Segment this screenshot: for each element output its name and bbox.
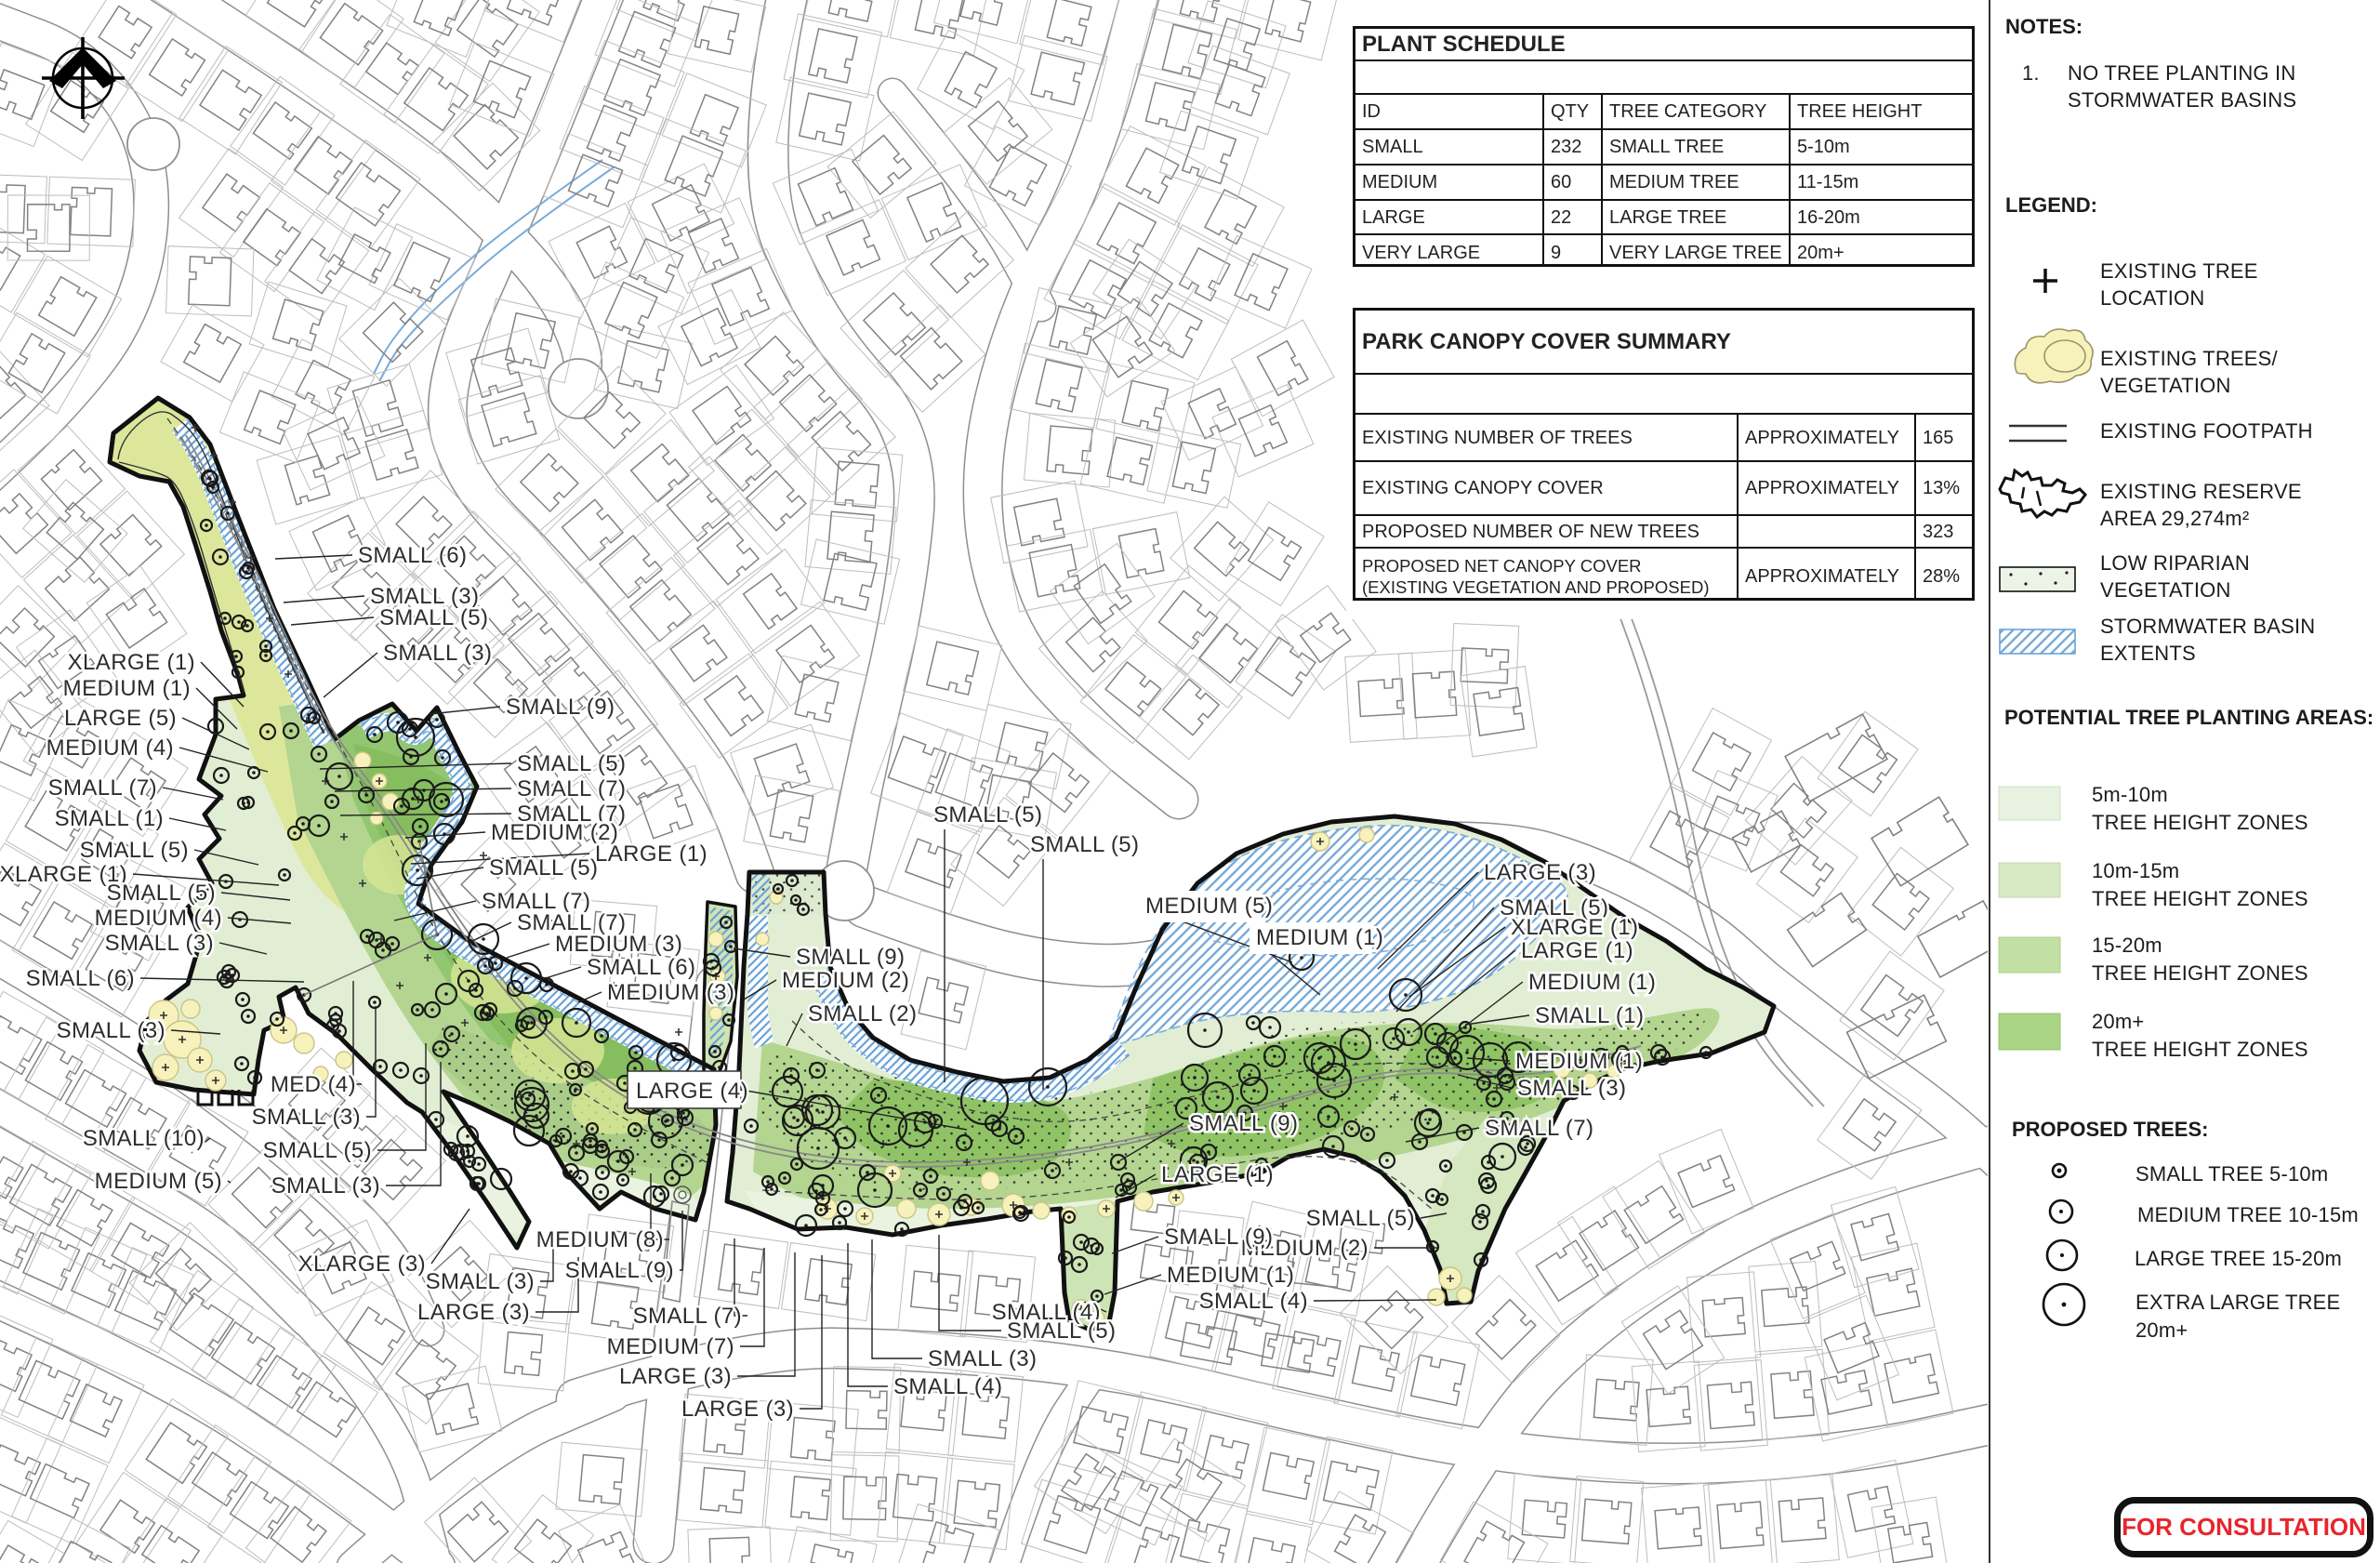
svg-text:XLARGE (1): XLARGE (1) [1511, 915, 1638, 940]
svg-text:SMALL (3): SMALL (3) [383, 641, 492, 666]
svg-text:SMALL (5): SMALL (5) [1007, 1318, 1116, 1344]
svg-text:MEDIUM (4): MEDIUM (4) [46, 735, 174, 761]
svg-text:LARGE (1): LARGE (1) [1161, 1162, 1274, 1187]
svg-text:SMALL (9): SMALL (9) [565, 1258, 674, 1283]
svg-text:SMALL (2): SMALL (2) [808, 1001, 917, 1027]
svg-text:MEDIUM (3): MEDIUM (3) [555, 932, 682, 957]
svg-text:SMALL (3): SMALL (3) [928, 1346, 1037, 1371]
svg-text:SMALL (6): SMALL (6) [26, 966, 135, 991]
svg-text:SMALL (7): SMALL (7) [48, 775, 157, 801]
svg-text:SMALL (7): SMALL (7) [517, 776, 626, 801]
svg-text:SMALL (3): SMALL (3) [105, 931, 214, 956]
svg-text:SMALL (5): SMALL (5) [489, 855, 598, 881]
svg-text:SMALL (5): SMALL (5) [263, 1138, 372, 1163]
svg-text:MEDIUM (1): MEDIUM (1) [63, 676, 191, 701]
svg-text:SMALL (5): SMALL (5) [1030, 832, 1139, 857]
svg-text:SMALL (9): SMALL (9) [1189, 1111, 1298, 1136]
svg-text:SMALL (3): SMALL (3) [252, 1105, 361, 1130]
svg-text:MEDIUM (8): MEDIUM (8) [536, 1227, 664, 1252]
svg-text:LARGE (5): LARGE (5) [64, 706, 177, 731]
svg-text:MEDIUM (1): MEDIUM (1) [1515, 1049, 1643, 1074]
svg-text:SMALL (5): SMALL (5) [107, 881, 216, 906]
svg-text:LARGE (3): LARGE (3) [417, 1300, 530, 1325]
svg-text:SMALL (6): SMALL (6) [358, 543, 467, 568]
svg-text:MEDIUM (4): MEDIUM (4) [95, 906, 222, 931]
svg-text:SMALL (1): SMALL (1) [1535, 1003, 1644, 1028]
svg-text:SMALL (3): SMALL (3) [57, 1018, 165, 1043]
svg-text:MEDIUM (1): MEDIUM (1) [1528, 970, 1656, 995]
svg-text:SMALL (5): SMALL (5) [379, 605, 488, 630]
svg-text:MED (4): MED (4) [271, 1072, 356, 1097]
svg-text:MEDIUM (7): MEDIUM (7) [607, 1334, 734, 1359]
svg-text:SMALL (9): SMALL (9) [1164, 1225, 1273, 1250]
svg-text:MEDIUM (1): MEDIUM (1) [1256, 925, 1383, 950]
svg-text:MEDIUM (5): MEDIUM (5) [1145, 894, 1273, 919]
svg-text:SMALL (10): SMALL (10) [83, 1126, 205, 1151]
svg-text:SMALL (4): SMALL (4) [893, 1374, 1002, 1399]
svg-text:SMALL (7): SMALL (7) [1485, 1116, 1593, 1141]
svg-text:SMALL (3): SMALL (3) [271, 1173, 380, 1199]
svg-text:LARGE (4): LARGE (4) [636, 1079, 748, 1104]
svg-text:SMALL (6): SMALL (6) [587, 955, 695, 980]
svg-text:SMALL (7): SMALL (7) [633, 1304, 742, 1329]
svg-text:MEDIUM (1): MEDIUM (1) [1167, 1263, 1294, 1288]
svg-text:LARGE (3): LARGE (3) [681, 1397, 794, 1422]
svg-text:LARGE (1): LARGE (1) [1521, 938, 1633, 963]
svg-text:SMALL (5): SMALL (5) [517, 751, 626, 776]
svg-text:LARGE (3): LARGE (3) [1484, 860, 1596, 885]
svg-text:SMALL (5): SMALL (5) [80, 838, 189, 863]
svg-text:SMALL (5): SMALL (5) [1306, 1206, 1415, 1231]
svg-text:SMALL (3): SMALL (3) [426, 1269, 535, 1294]
svg-text:SMALL (9): SMALL (9) [796, 945, 905, 970]
svg-text:SMALL (3): SMALL (3) [1517, 1076, 1626, 1101]
svg-text:SMALL (1): SMALL (1) [55, 806, 164, 831]
svg-text:MEDIUM (3): MEDIUM (3) [607, 980, 734, 1005]
svg-text:MEDIUM (5): MEDIUM (5) [95, 1169, 222, 1194]
svg-text:MEDIUM (2): MEDIUM (2) [782, 968, 909, 993]
svg-text:XLARGE (3): XLARGE (3) [298, 1252, 426, 1277]
svg-text:SMALL (4): SMALL (4) [1199, 1289, 1308, 1314]
svg-text:SMALL (5): SMALL (5) [933, 802, 1042, 828]
svg-text:LARGE (1): LARGE (1) [595, 841, 707, 867]
svg-text:XLARGE (1): XLARGE (1) [68, 650, 195, 675]
svg-text:SMALL (9): SMALL (9) [506, 695, 615, 720]
svg-text:LARGE (3): LARGE (3) [619, 1364, 732, 1389]
